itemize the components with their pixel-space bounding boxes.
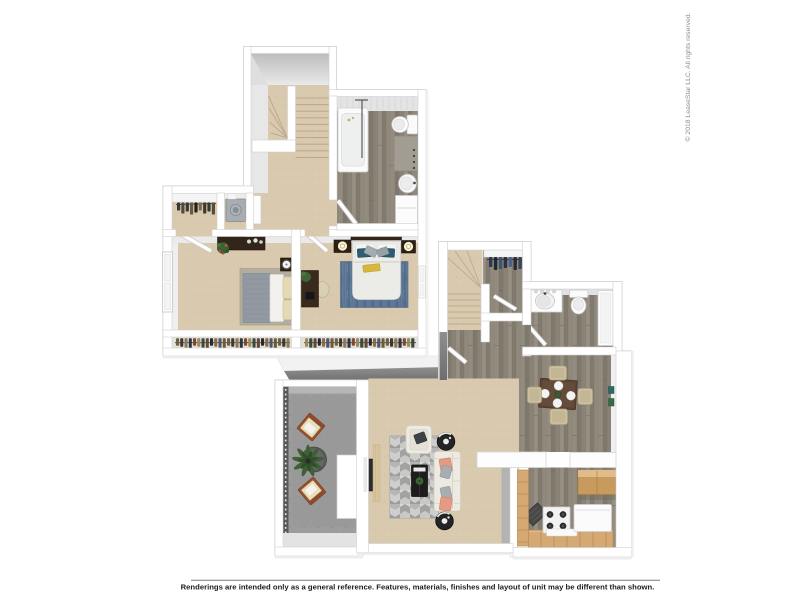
svg-text:Renderings are intended only a: Renderings are intended only as a genera… <box>181 583 655 592</box>
svg-text:© 2018 LeaseStar LLC. All righ: © 2018 LeaseStar LLC. All rights reserve… <box>684 12 692 141</box>
